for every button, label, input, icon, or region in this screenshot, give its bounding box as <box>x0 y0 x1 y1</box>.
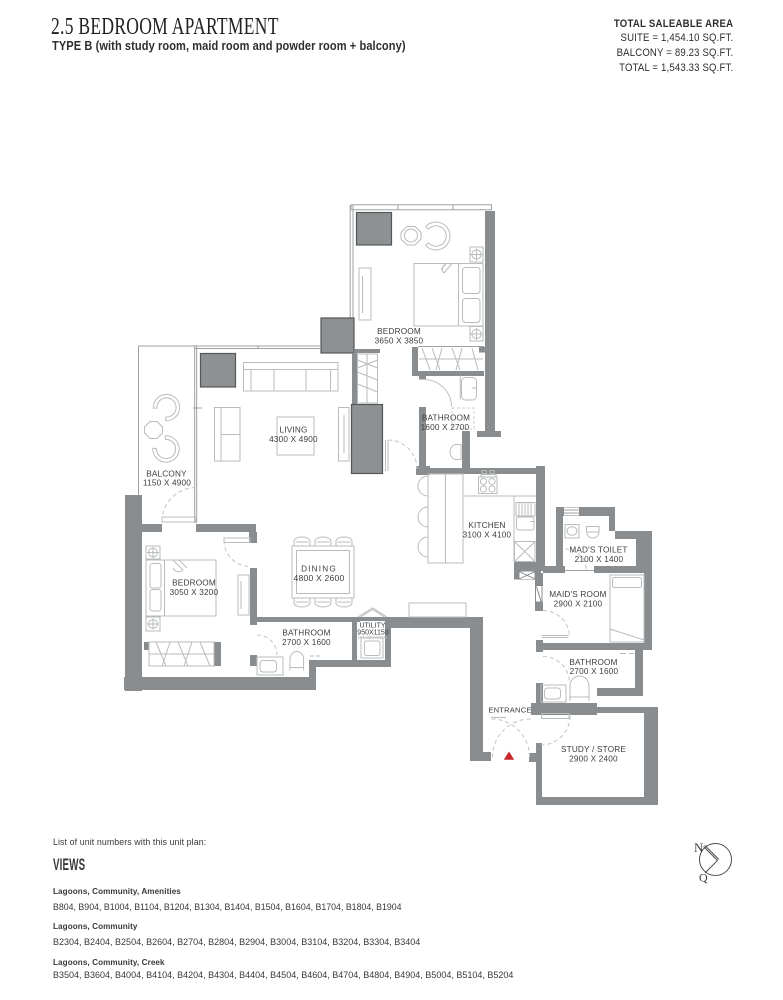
svg-text:Q: Q <box>699 871 708 885</box>
svg-text:3050 X 3200: 3050 X 3200 <box>170 588 219 597</box>
svg-text:2700 X 1600: 2700 X 1600 <box>282 638 331 647</box>
svg-text:STUDY / STORE: STUDY / STORE <box>561 745 626 754</box>
svg-text:MAID'S ROOM: MAID'S ROOM <box>549 590 606 599</box>
svg-text:LIVING: LIVING <box>279 426 307 435</box>
svg-text:BATHROOM: BATHROOM <box>422 414 470 423</box>
svg-text:3100 X 4100: 3100 X 4100 <box>463 531 512 540</box>
svg-text:BALCONY: BALCONY <box>146 470 187 479</box>
svg-text:3650 X 3850: 3650 X 3850 <box>375 337 424 346</box>
svg-text:ENTRANCE: ENTRANCE <box>488 706 531 715</box>
svg-text:2900 X 2400: 2900 X 2400 <box>569 755 618 764</box>
svg-text:BATHROOM: BATHROOM <box>282 629 330 638</box>
svg-text:UTILITY: UTILITY <box>359 623 385 630</box>
svg-text:MAD'S TOILET: MAD'S TOILET <box>569 546 627 555</box>
svg-text:1600 X 2700: 1600 X 2700 <box>421 423 470 432</box>
svg-text:BEDROOM: BEDROOM <box>377 327 421 336</box>
svg-text:4300 X 4900: 4300 X 4900 <box>269 435 318 444</box>
svg-text:KITCHEN: KITCHEN <box>468 521 505 530</box>
svg-text:2100 X 1400: 2100 X 1400 <box>575 555 624 564</box>
svg-text:N: N <box>694 840 704 855</box>
svg-text:1150 X 4900: 1150 X 4900 <box>143 479 191 488</box>
svg-text:2900 X 2100: 2900 X 2100 <box>554 600 603 609</box>
svg-text:BATHROOM: BATHROOM <box>569 658 617 667</box>
svg-text:2700 X 1600: 2700 X 1600 <box>570 667 619 676</box>
svg-text:(W/D PROVISION): (W/D PROVISION) <box>358 636 388 640</box>
svg-text:BEDROOM: BEDROOM <box>172 579 216 588</box>
svg-text:4800 X 2600: 4800 X 2600 <box>294 573 345 583</box>
